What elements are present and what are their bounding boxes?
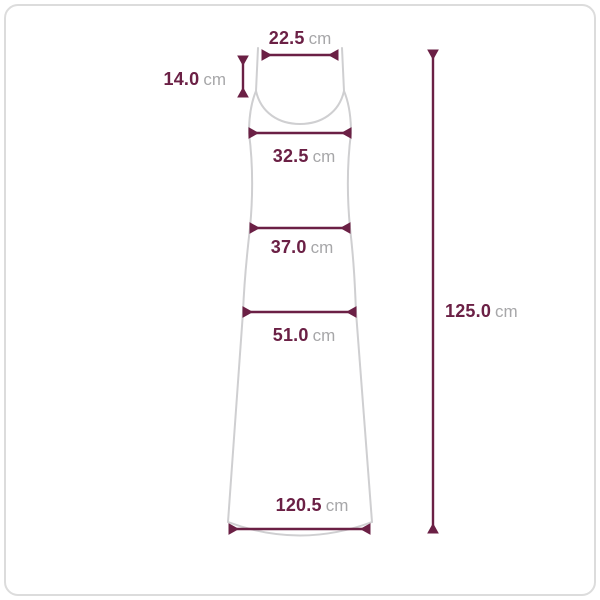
top-width-dimension-line [262,50,338,60]
strap-length-unit: cm [203,70,226,89]
top-width-value: 22.5 [269,28,305,48]
arrowhead [243,307,252,317]
hem-width-dimension-line [229,524,370,534]
right-side-seam [348,133,372,522]
total-length-unit: cm [495,302,518,321]
hip-width-unit: cm [313,326,336,345]
total-length-label: 125.0cm [445,302,518,320]
arrowhead [262,50,271,60]
total-length-dimension-line [428,50,438,533]
left-side-seam [228,133,252,522]
bust-width-value: 32.5 [273,146,309,166]
arrowhead [342,128,351,138]
hip-width-dimension-line [243,307,356,317]
bust-width-label: 32.5cm [273,147,336,165]
strap-length-label: 14.0cm [163,70,226,88]
left-strap-line [256,48,258,91]
arrowhead [329,50,338,60]
arrowhead [238,88,248,97]
neckline [256,91,344,124]
arrowhead [238,56,248,65]
waist-width-label: 37.0cm [271,238,334,256]
arrowhead [428,524,438,533]
hip-width-label: 51.0cm [273,326,336,344]
size-chart-diagram: 22.5cm 14.0cm 32.5cm 37.0cm 51.0cm 120.5… [0,0,600,600]
top-width-label: 22.5cm [269,29,332,47]
arrowhead [250,223,259,233]
waist-width-dimension-line [250,223,350,233]
waist-width-value: 37.0 [271,237,307,257]
hem-width-label: 120.5cm [276,496,349,514]
dress-outline [228,48,372,536]
bust-width-unit: cm [313,147,336,166]
bust-width-dimension-line [249,128,351,138]
arrowhead [249,128,258,138]
hem-width-value: 120.5 [276,495,322,515]
hem-width-unit: cm [326,496,349,515]
waist-width-unit: cm [311,238,334,257]
arrowhead [428,50,438,59]
strap-length-value: 14.0 [163,69,199,89]
arrowhead [341,223,350,233]
top-width-unit: cm [309,29,332,48]
hip-width-value: 51.0 [273,325,309,345]
arrowhead [347,307,356,317]
right-armhole [344,91,351,133]
right-strap-line [342,48,344,91]
total-length-value: 125.0 [445,301,491,321]
strap-length-dimension-line [238,56,248,97]
left-armhole [249,91,256,133]
